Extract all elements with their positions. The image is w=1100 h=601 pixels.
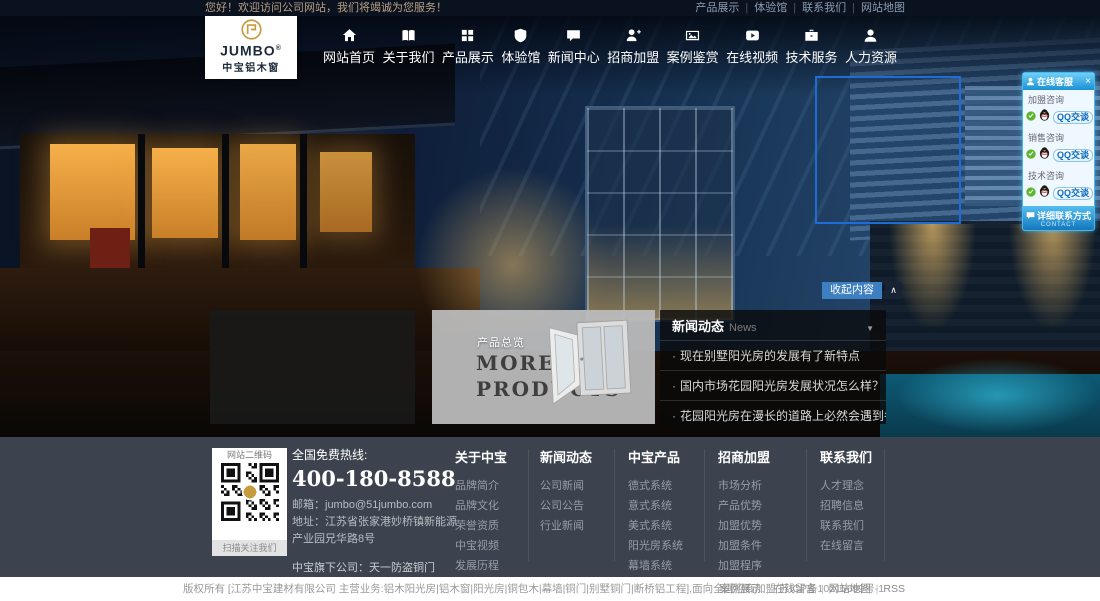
check-icon <box>1026 184 1036 202</box>
hero-lit-window <box>50 144 135 240</box>
hero-post <box>138 134 145 270</box>
separator: | <box>793 0 796 16</box>
bullet-icon: · <box>672 379 676 393</box>
nav-item-新闻中心[interactable]: 新闻中心 <box>548 28 600 66</box>
footer-link[interactable]: 美式系统 <box>628 516 683 536</box>
hero-dark-panel <box>210 310 415 424</box>
news-item-text: 国内市场花园阳光房发展状况怎么样？ <box>680 379 884 393</box>
news-item-text: 花园阳光房在漫长的道路上必然会遇到各种挑战 <box>680 409 886 423</box>
news-item[interactable]: ·国内市场花园阳光房发展状况怎么样？ <box>660 370 886 400</box>
check-icon <box>1026 146 1036 164</box>
footer-link[interactable]: 公司公告 <box>540 496 592 516</box>
qq-footer-sub: CONTACT <box>1041 222 1077 228</box>
bottombar-link[interactable]: 案例展示 <box>719 577 761 601</box>
footer-contact: 全国免费热线: 400-180-8588 邮箱：jumbo@51jumbo.co… <box>292 446 460 575</box>
footer-link[interactable]: 公司新闻 <box>540 476 592 496</box>
caret-down-icon[interactable]: ▼ <box>866 324 874 333</box>
welcome-text: 您好！欢迎访问公司网站，我们将竭诚为您服务！ <box>205 0 447 16</box>
nav-item-label: 关于我们 <box>382 47 434 66</box>
separator: | <box>766 577 769 601</box>
qq-group-row: QQ交谈 <box>1023 183 1094 204</box>
hotline-label: 全国免费热线: <box>292 446 460 463</box>
footer-divider <box>884 449 885 561</box>
page: 您好！欢迎访问公司网站，我们将竭诚为您服务！ 产品展示|体验馆|联系我们|网站地… <box>0 0 1100 601</box>
news-title: 新闻动态 <box>672 316 724 335</box>
hero-lit-window <box>320 152 372 232</box>
footer-link[interactable]: 市场分析 <box>718 476 773 496</box>
bullet-icon: · <box>672 409 676 423</box>
qq-group-label: 加盟咨询 <box>1023 90 1094 107</box>
footer-link[interactable]: 品牌文化 <box>455 496 507 516</box>
topbar-link[interactable]: 联系我们 <box>802 0 846 16</box>
qr-code <box>221 463 279 521</box>
news-item[interactable]: ·现在别墅阳光房的发展有了新特点 <box>660 340 886 370</box>
video-icon <box>745 28 760 43</box>
qq-group-label: 销售咨询 <box>1023 128 1094 145</box>
footer-column-title: 招商加盟 <box>718 447 773 466</box>
qq-groups: 加盟咨询QQ交谈销售咨询QQ交谈技术咨询QQ交谈 <box>1023 90 1094 204</box>
chevron-up-icon[interactable]: ∧ <box>885 282 902 299</box>
footer-column-title: 中宝产品 <box>628 447 683 466</box>
footer-column-关于中宝: 关于中宝品牌简介品牌文化荣誉资质中宝视频发展历程品牌形象 <box>455 447 507 596</box>
bottombar-links: 案例展示|在线留言|网站地图|RSS <box>719 577 905 601</box>
check-icon <box>1026 108 1036 126</box>
separator: | <box>876 577 879 601</box>
logo-reg: ® <box>276 45 282 52</box>
nav-item-label: 招商加盟 <box>607 47 659 66</box>
hero-post <box>300 134 307 270</box>
footer-column-中宝产品: 中宝产品德式系统意式系统美式系统阳光房系统幕墙系统断桥铝系统 <box>628 447 683 596</box>
nav-item-label: 新闻中心 <box>548 47 600 66</box>
logo-subtitle: 中宝铝木窗 <box>222 59 280 74</box>
footer-divider <box>704 449 705 561</box>
qq-penguin-icon <box>1038 146 1051 164</box>
nav-item-网站首页[interactable]: 网站首页 <box>323 28 375 66</box>
footer-link[interactable]: 阳光房系统 <box>628 536 683 556</box>
hero-lit-window <box>152 148 218 238</box>
nav-item-label: 网站首页 <box>323 47 375 66</box>
topbar-links: 产品展示|体验馆|联系我们|网站地图 <box>695 0 905 16</box>
qq-penguin-icon <box>1038 184 1051 202</box>
qq-chat-button[interactable]: QQ交谈 <box>1053 149 1093 162</box>
contact-email: 邮箱：jumbo@51jumbo.com <box>292 497 460 514</box>
qq-group-row: QQ交谈 <box>1023 145 1094 166</box>
qq-penguin-icon <box>1038 108 1051 126</box>
more-products-panel[interactable]: 产品总览 MORE PRODUCTS <box>432 310 655 424</box>
products-overview-tag: 产品总览 <box>477 334 525 350</box>
logo-emblem-icon <box>240 18 263 41</box>
bottombar: 版权所有 [江苏中宝建材有限公司 主营业务:铝木阳光房|铝木窗|阳光房|铜包木|… <box>0 577 1100 601</box>
footer-link[interactable]: 发展历程 <box>455 556 507 576</box>
footer-link[interactable]: 意式系统 <box>628 496 683 516</box>
qr-title: 网站二维码 <box>227 448 272 463</box>
nav-item-label: 案例鉴赏 <box>667 47 719 66</box>
person-icon <box>1026 77 1035 86</box>
footer-link[interactable]: 荣誉资质 <box>455 516 507 536</box>
topbar-link[interactable]: 体验馆 <box>754 0 787 16</box>
news-item[interactable]: ·花园阳光房在漫长的道路上必然会遇到各种挑战 <box>660 400 886 430</box>
photo-icon <box>685 28 700 43</box>
news-panel: 新闻动态 News ▼ ·现在别墅阳光房的发展有了新特点·国内市场花园阳光房发展… <box>660 310 886 424</box>
hero-downlight <box>1005 224 1100 339</box>
footer-link[interactable]: 联系我们 <box>820 516 872 536</box>
separator: | <box>821 577 824 601</box>
nav-item-人力资源[interactable]: 人力资源 <box>845 28 897 66</box>
footer-link[interactable]: 品牌简介 <box>455 476 507 496</box>
footer-link[interactable]: 加盟优势 <box>718 516 773 536</box>
qq-footer-label: 详细联系方式 <box>1037 209 1091 222</box>
nav-item-技术服务[interactable]: 技术服务 <box>786 28 838 66</box>
nav-item-体验馆[interactable]: 体验馆 <box>501 28 540 66</box>
footer-link[interactable]: 在线留言 <box>820 536 872 556</box>
footer-column-title: 关于中宝 <box>455 447 507 466</box>
hero-lit-window <box>240 144 296 240</box>
hero-post <box>222 134 229 270</box>
footer-divider <box>806 449 807 561</box>
book-icon <box>401 28 416 43</box>
footer-column-联系我们: 联系我们人才理念招聘信息联系我们在线留言 <box>820 447 872 556</box>
bottombar-link[interactable]: RSS <box>883 577 905 601</box>
nav-item-在线视频[interactable]: 在线视频 <box>726 28 778 66</box>
contact-address: 地址：江苏省张家港妙桥镇新能源产业园兄华路8号 <box>292 514 460 548</box>
news-list: ·现在别墅阳光房的发展有了新特点·国内市场花园阳光房发展状况怎么样？·花园阳光房… <box>660 340 886 430</box>
footer-link[interactable]: 幕墙系统 <box>628 556 683 576</box>
footer-link[interactable]: 产品优势 <box>718 496 773 516</box>
chat-bubble-icon <box>1026 211 1035 220</box>
qq-contact-footer[interactable]: 详细联系方式 CONTACT <box>1023 206 1094 230</box>
footer: 网站二维码 扫描关注我们 全国免费热线: 400-180-8588 邮箱：jum… <box>0 437 1100 577</box>
footer-column-title: 新闻动态 <box>540 447 592 466</box>
footer-column-title: 联系我们 <box>820 447 872 466</box>
collapse-content-button[interactable]: 收起内容 <box>822 282 882 299</box>
hero-banner: JUMBO® 中宝铝木窗 网站首页关于我们产品展示体验馆新闻中心招商加盟案例鉴赏… <box>0 16 1100 437</box>
qq-service-panel: 在线客服 × 加盟咨询QQ交谈销售咨询QQ交谈技术咨询QQ交谈 详细联系方式 C… <box>1022 72 1095 231</box>
footer-column-新闻动态: 新闻动态公司新闻公司公告行业新闻 <box>540 447 592 536</box>
news-item-text: 现在别墅阳光房的发展有了新特点 <box>680 349 860 363</box>
news-panel-header: 新闻动态 News ▼ <box>660 310 886 340</box>
nav-item-关于我们[interactable]: 关于我们 <box>382 28 434 66</box>
footer-link[interactable]: 行业新闻 <box>540 516 592 536</box>
news-title-en: News <box>729 322 861 334</box>
grid-icon <box>460 28 475 43</box>
nav-item-案例鉴赏[interactable]: 案例鉴赏 <box>667 28 719 66</box>
hero-glass-atrium <box>585 106 735 322</box>
topbar-link[interactable]: 产品展示 <box>695 0 739 16</box>
footer-link[interactable]: 德式系统 <box>628 476 683 496</box>
qq-panel-title: 在线客服 <box>1037 75 1083 88</box>
close-icon[interactable]: × <box>1085 77 1091 87</box>
footer-divider <box>614 449 615 561</box>
bottombar-link[interactable]: 在线留言 <box>774 577 816 601</box>
nav-item-招商加盟[interactable]: 招商加盟 <box>607 28 659 66</box>
topbar-link[interactable]: 网站地图 <box>861 0 905 16</box>
window-product-image <box>539 316 643 408</box>
footer-link[interactable]: 中宝视频 <box>455 536 507 556</box>
user-plus-icon <box>626 28 641 43</box>
footer-link[interactable]: 招聘信息 <box>820 496 872 516</box>
qq-panel-header: 在线客服 × <box>1023 73 1094 90</box>
company-logo[interactable]: JUMBO® 中宝铝木窗 <box>205 16 297 79</box>
footer-link[interactable]: 加盟程序 <box>718 556 773 576</box>
user-icon <box>863 28 878 43</box>
qq-group-label: 技术咨询 <box>1023 166 1094 183</box>
main-nav: 网站首页关于我们产品展示体验馆新闻中心招商加盟案例鉴赏在线视频技术服务人力资源 <box>323 28 897 66</box>
hero-pool-glow <box>895 358 1100 433</box>
topbar: 您好！欢迎访问公司网站，我们将竭诚为您服务！ 产品展示|体验馆|联系我们|网站地… <box>0 0 1100 16</box>
footer-divider <box>528 449 529 561</box>
footer-link[interactable]: 加盟条件 <box>718 536 773 556</box>
separator: | <box>852 0 855 16</box>
bottombar-link[interactable]: 网站地图 <box>829 577 871 601</box>
briefcase-icon <box>804 28 819 43</box>
qr-caption: 扫描关注我们 <box>212 540 287 556</box>
chat-icon <box>566 28 581 43</box>
qq-group-row: QQ交谈 <box>1023 107 1094 128</box>
hero-highlight-box <box>815 76 961 224</box>
nav-item-label: 技术服务 <box>786 47 838 66</box>
shield-icon <box>513 28 528 43</box>
nav-item-产品展示[interactable]: 产品展示 <box>442 28 494 66</box>
nav-item-label: 在线视频 <box>726 47 778 66</box>
nav-item-label: 人力资源 <box>845 47 897 66</box>
qq-chat-button[interactable]: QQ交谈 <box>1053 111 1093 124</box>
qq-chat-button[interactable]: QQ交谈 <box>1053 187 1093 200</box>
footer-link[interactable]: 人才理念 <box>820 476 872 496</box>
separator: | <box>745 0 748 16</box>
collapse-control: 收起内容 ∧ <box>822 282 902 299</box>
hotline-number: 400-180-8588 <box>292 466 460 491</box>
hero-center-glow <box>415 166 610 331</box>
nav-item-label: 体验馆 <box>501 47 540 66</box>
logo-name: JUMBO® <box>220 42 282 58</box>
home-icon <box>342 28 357 43</box>
subsidiary-line: 中宝旗下公司：天一防盗铜门 <box>292 559 460 575</box>
qr-card: 网站二维码 扫描关注我们 <box>212 448 287 556</box>
bullet-icon: · <box>672 349 676 363</box>
nav-item-label: 产品展示 <box>442 47 494 66</box>
